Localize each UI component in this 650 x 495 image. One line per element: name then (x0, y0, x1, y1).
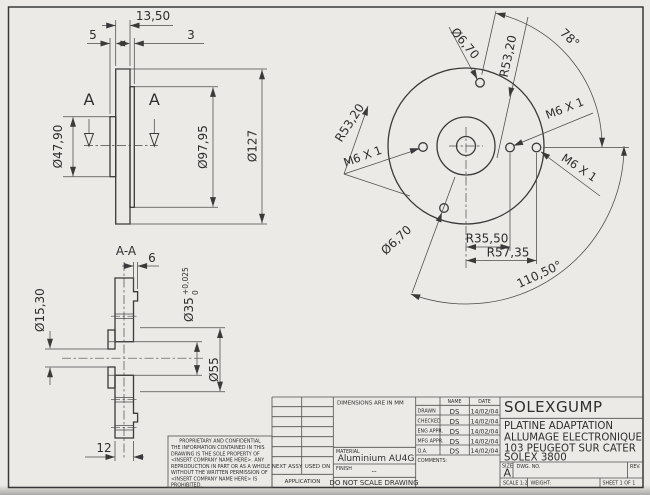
drawing-title-line-1: PLATINE ADAPTATION (504, 421, 613, 432)
section-view-label: A-A (116, 244, 137, 258)
checked-date: 14/02/04 (471, 419, 499, 426)
proprietary-line: DRAWING IS THE SOLE PROPERTY OF (171, 451, 260, 457)
checked-label: CHECKED (418, 419, 442, 425)
do-not-scale-note: DO NOT SCALE DRAWING (329, 479, 418, 487)
sheet-label: SHEET 1 OF 1 (603, 481, 636, 487)
section-view: A-A 6 Ø35 (33, 244, 225, 461)
proprietary-line: <INSERT COMPANY NAME HERE> IS (171, 477, 257, 483)
proprietary-line: <INSERT COMPANY NAME HERE>. ANY (171, 458, 264, 464)
dim-m6-top-right: M6 X 1 (544, 95, 586, 122)
title-block: NEXT ASSY USED ON APPLICATION DIMENSIONS… (272, 397, 643, 488)
rev-label: REV. (630, 464, 641, 470)
section-arrow-label-right: A (149, 90, 160, 109)
dim-m6-bottom-right: M6 X 1 (559, 151, 600, 185)
drawn-name: DS (450, 408, 460, 416)
front-view: 13,50 5 3 Ø47,90 Ø97,95 Ø127 A A (51, 9, 267, 224)
finish-label: FINISH (336, 466, 352, 472)
used-on-label: USED ON (305, 464, 330, 470)
finish-value: -- (371, 468, 377, 476)
dim-6: 6 (148, 251, 156, 265)
application-label: APPLICATION (285, 479, 321, 485)
eng-appr-date: 14/02/04 (471, 429, 499, 436)
dim-13-50: 13,50 (136, 9, 170, 23)
scale-label: SCALE 1:2 (503, 481, 528, 487)
approval-row: Q.A. DS 14/02/04 (418, 448, 499, 456)
proprietary-line: PROHIBITED. (171, 482, 202, 488)
dim-3: 3 (187, 28, 195, 42)
dim-d97-95: Ø97,95 (196, 125, 210, 169)
size-value: A (504, 467, 512, 480)
weight-label: WEIGHT: (531, 481, 552, 487)
dim-d35: Ø35 (182, 297, 196, 322)
drawing-sheet: 13,50 5 3 Ø47,90 Ø97,95 Ø127 A A (0, 0, 650, 495)
dim-angle-78: 78° (557, 26, 582, 51)
next-assy-label: NEXT ASSY (272, 464, 303, 470)
dim-d55: Ø55 (207, 357, 221, 382)
dim-d35-tol-upper: +0,025 (181, 267, 190, 295)
mfg-appr-date: 14/02/04 (471, 439, 499, 446)
dim-r57-35: R57,35 (487, 246, 530, 260)
mfg-appr-label: MFG APPR. (418, 439, 444, 445)
company-name: SOLEXGUMP (504, 398, 603, 416)
qa-name: DS (450, 448, 460, 456)
dim-d6-70-bottom: Ø6,70 (378, 223, 414, 258)
proprietary-line: THE INFORMATION CONTAINED IN THIS (170, 445, 265, 451)
drawing-title-line-4: SOLEX 3800 (504, 453, 567, 464)
proprietary-line: WITHOUT THE WRITTEN PERMISSION OF (171, 470, 268, 476)
date-header: DATE (478, 399, 490, 405)
proprietary-line: REPRODUCTION IN PART OR AS A WHOLE (171, 464, 270, 470)
dim-d15-30: Ø15,30 (33, 288, 47, 332)
dim-12: 12 (96, 441, 111, 455)
engineering-drawing: 13,50 5 3 Ø47,90 Ø97,95 Ø127 A A (0, 0, 650, 495)
dim-d35-tol-lower: 0 (191, 290, 200, 295)
material-value: Aluminium AU4G (338, 454, 415, 464)
comments-label: COMMENTS: (418, 458, 448, 464)
dim-5: 5 (89, 28, 97, 42)
circular-view: R35,50 R57,35 78° 110,50° Ø6,70 Ø6,70 (332, 11, 629, 304)
section-arrow-label-left: A (84, 90, 95, 109)
dim-d127: Ø127 (246, 130, 260, 162)
eng-appr-label: ENG APPR. (418, 429, 444, 435)
eng-appr-name: DS (450, 428, 460, 436)
dimensions-note: DIMENSIONS ARE IN MM (337, 401, 404, 407)
dim-m6-left: M6 X 1 (342, 143, 384, 170)
proprietary-heading: PROPRIETARY AND CONFIDENTIAL (179, 439, 261, 445)
dim-r35-50: R35,50 (466, 232, 509, 246)
dim-d6-70-top: Ø6,70 (448, 25, 482, 62)
proprietary-block: PROPRIETARY AND CONFIDENTIAL THE INFORMA… (168, 436, 272, 488)
dwg-no-label: DWG. NO. (517, 464, 541, 470)
drawing-title-line-2: ALLUMAGE ELECTRONIQUE (504, 433, 642, 444)
name-header: NAME (447, 399, 461, 405)
drawn-date: 14/02/04 (471, 409, 499, 416)
mfg-appr-name: DS (450, 438, 460, 446)
qa-date: 14/02/04 (471, 448, 499, 455)
dim-d47-90: Ø47,90 (51, 125, 65, 169)
qa-label: Q.A. (418, 449, 428, 455)
checked-name: DS (450, 418, 460, 426)
drawn-label: DRAWN (418, 409, 437, 415)
